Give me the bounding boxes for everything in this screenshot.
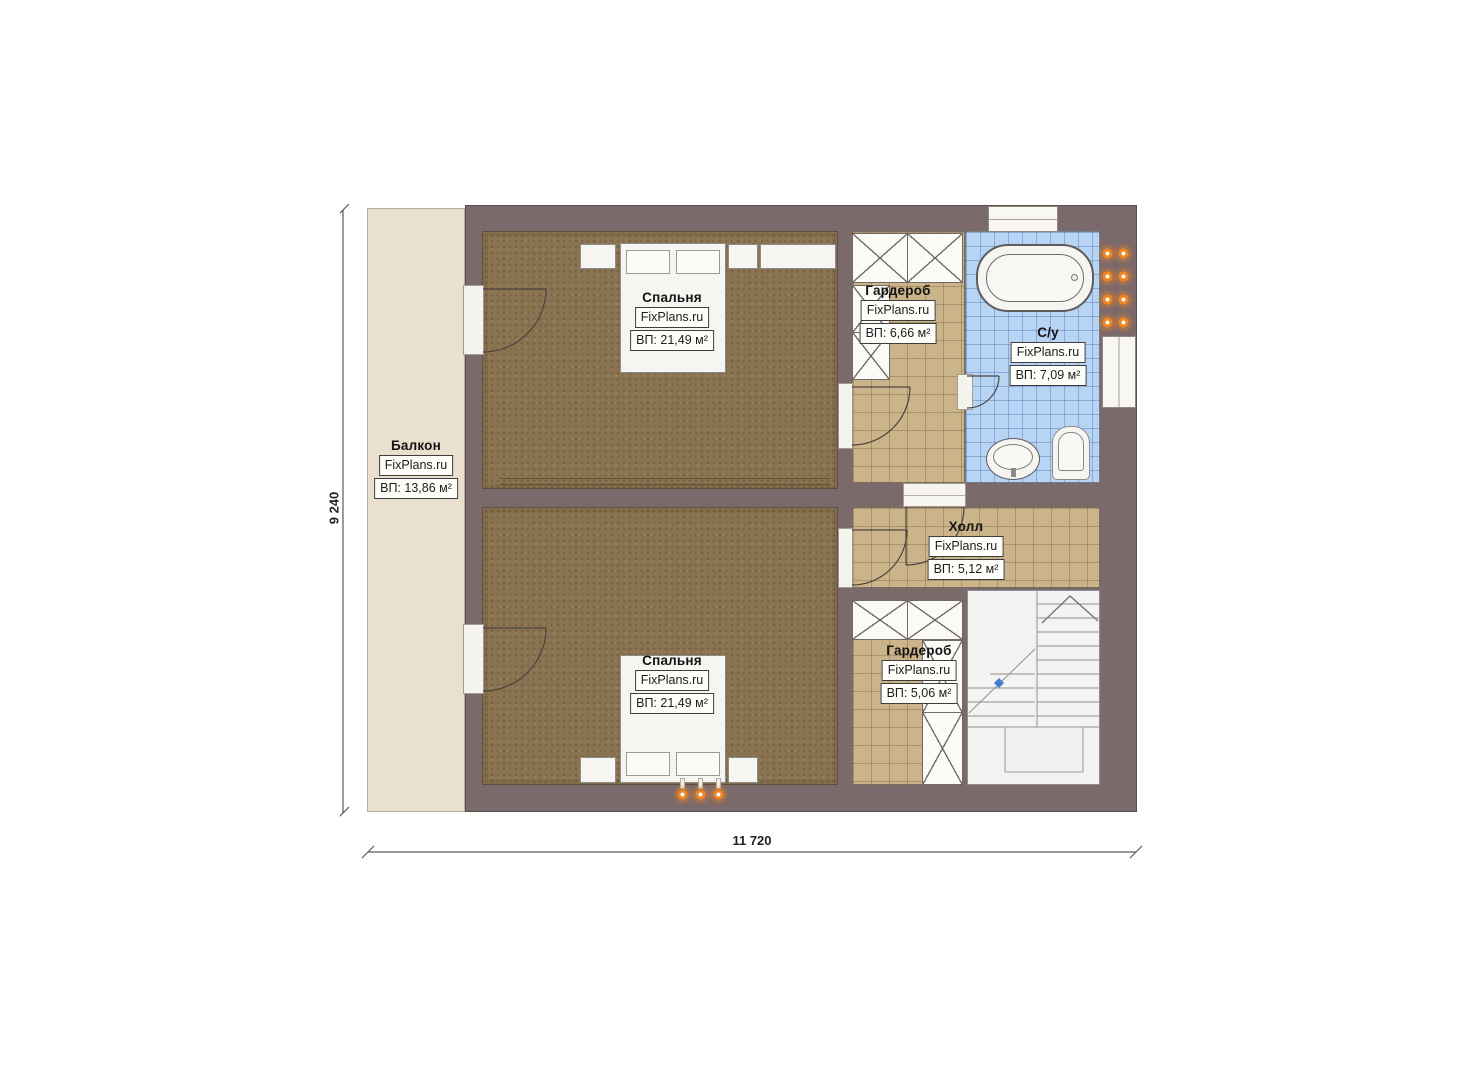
- room-area: ВП: 13,86 м²: [374, 478, 458, 499]
- radiator-dot: [1118, 317, 1129, 328]
- room-area: ВП: 21,49 м²: [630, 330, 714, 351]
- pillow: [626, 752, 670, 776]
- pillow: [676, 250, 720, 274]
- room-area: ВП: 5,06 м²: [881, 683, 958, 704]
- label-hall: Холл FixPlans.ru ВП: 5,12 м²: [928, 519, 1005, 580]
- radiator-stem: [698, 778, 703, 789]
- room-area: ВП: 5,12 м²: [928, 559, 1005, 580]
- label-bedroom-bottom: Спальня FixPlans.ru ВП: 21,49 м²: [630, 653, 714, 714]
- door-opening-hall: [838, 528, 853, 588]
- radiator-dot: [1102, 271, 1113, 282]
- window-right: [1102, 336, 1136, 408]
- dimension-width: 11 720: [732, 833, 771, 848]
- door-opening-bathroom: [957, 374, 973, 410]
- watermark: FixPlans.ru: [882, 660, 957, 681]
- staircase: [967, 590, 1100, 785]
- pillow: [626, 250, 670, 274]
- room-name: Спальня: [642, 653, 702, 668]
- nightstand: [580, 757, 616, 783]
- nightstand: [728, 244, 758, 269]
- bathtub-drain: [1071, 274, 1078, 281]
- sink: [986, 438, 1040, 480]
- label-bedroom-top: Спальня FixPlans.ru ВП: 21,49 м²: [630, 290, 714, 351]
- bathtub-inner: [986, 254, 1084, 302]
- room-name: Гардероб: [886, 643, 951, 658]
- watermark: FixPlans.ru: [635, 670, 710, 691]
- door-threshold-hall: [903, 483, 966, 507]
- floor-seam: [500, 484, 830, 485]
- radiator-dot: [695, 789, 706, 800]
- radiator-stem: [680, 778, 685, 789]
- radiator-dot: [1102, 317, 1113, 328]
- floor-seam: [500, 478, 830, 479]
- door-opening-wardrobe-top: [838, 383, 853, 449]
- balcony-area: [367, 208, 465, 812]
- pillow: [676, 752, 720, 776]
- window-top: [988, 206, 1058, 232]
- watermark: FixPlans.ru: [861, 300, 936, 321]
- label-wardrobe-top: Гардероб FixPlans.ru ВП: 6,66 м²: [860, 283, 937, 344]
- radiator-dot: [713, 789, 724, 800]
- room-area: ВП: 21,49 м²: [630, 693, 714, 714]
- watermark: FixPlans.ru: [635, 307, 710, 328]
- radiator-dot: [1102, 294, 1113, 305]
- watermark: FixPlans.ru: [1011, 342, 1086, 363]
- radiator-stem: [716, 778, 721, 789]
- door-opening-balcony-bottom: [463, 624, 484, 694]
- floor-plan-canvas: Балкон FixPlans.ru ВП: 13,86 м² Спальня …: [0, 0, 1474, 1080]
- room-name: Балкон: [391, 438, 441, 453]
- room-area: ВП: 7,09 м²: [1010, 365, 1087, 386]
- room-name: Гардероб: [865, 283, 930, 298]
- room-name: С/у: [1037, 325, 1059, 340]
- dimension-height: 9 240: [327, 492, 342, 525]
- nightstand: [728, 757, 758, 783]
- room-area: ВП: 6,66 м²: [860, 323, 937, 344]
- radiator-dot: [677, 789, 688, 800]
- radiator-dot: [1118, 294, 1129, 305]
- watermark: FixPlans.ru: [379, 455, 454, 476]
- label-wardrobe-bottom: Гардероб FixPlans.ru ВП: 5,06 м²: [881, 643, 958, 704]
- label-balcony: Балкон FixPlans.ru ВП: 13,86 м²: [374, 438, 458, 499]
- label-bathroom: С/у FixPlans.ru ВП: 7,09 м²: [1010, 325, 1087, 386]
- sink-inner: [993, 444, 1033, 470]
- radiator-dot: [1118, 248, 1129, 259]
- closet-unit: [852, 600, 963, 640]
- room-name: Спальня: [642, 290, 702, 305]
- sink-tap: [1011, 468, 1016, 477]
- door-opening-balcony-top: [463, 285, 484, 355]
- radiator-dot: [1102, 248, 1113, 259]
- bathtub: [976, 244, 1094, 312]
- toilet-inner: [1058, 432, 1084, 471]
- closet-unit: [852, 233, 963, 283]
- nightstand: [580, 244, 616, 269]
- room-name: Холл: [949, 519, 984, 534]
- dresser: [760, 244, 836, 269]
- watermark: FixPlans.ru: [929, 536, 1004, 557]
- toilet: [1052, 426, 1090, 480]
- radiator-dot: [1118, 271, 1129, 282]
